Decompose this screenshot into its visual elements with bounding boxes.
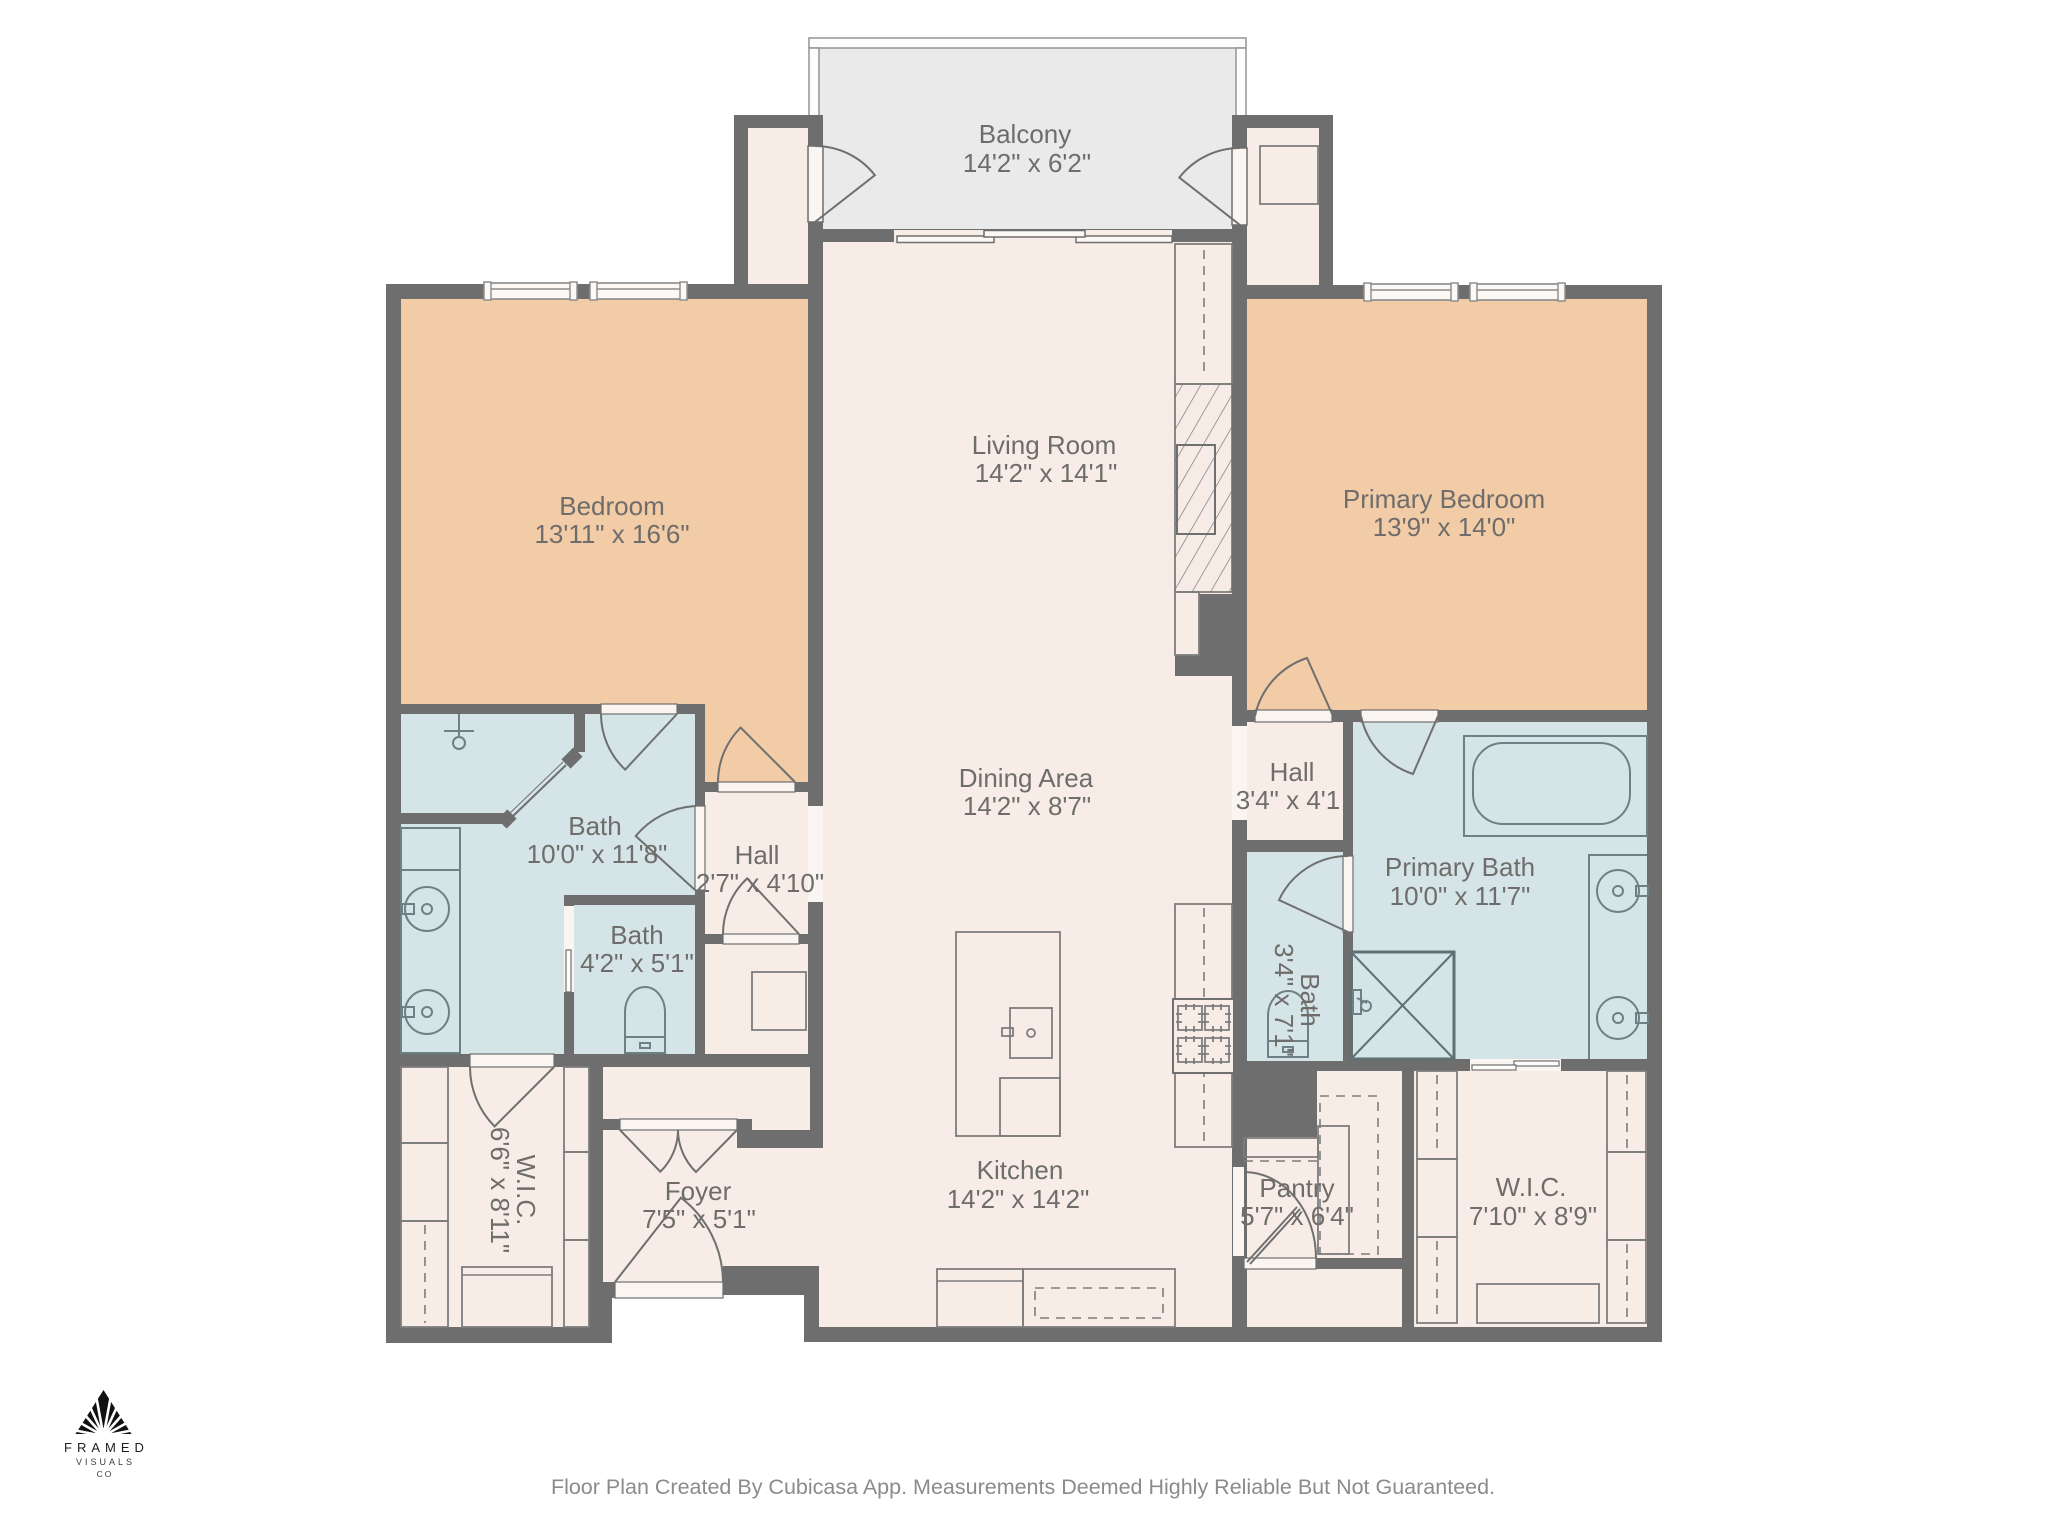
svg-text:CO: CO [97,1469,114,1479]
svg-text:7'5" x 5'1": 7'5" x 5'1" [642,1204,756,1234]
svg-text:7'10" x 8'9": 7'10" x 8'9" [1469,1201,1597,1231]
svg-text:Primary Bedroom: Primary Bedroom [1343,484,1545,514]
svg-text:10'0" x 11'8": 10'0" x 11'8" [527,839,668,869]
svg-text:Foyer: Foyer [665,1176,732,1206]
svg-text:14'2" x 14'1": 14'2" x 14'1" [975,458,1118,488]
svg-text:6'6" x 8'11": 6'6" x 8'11" [485,1127,515,1253]
svg-text:VISUALS: VISUALS [76,1457,135,1467]
svg-text:Dining Area: Dining Area [959,763,1094,793]
svg-text:14'2" x 14'2": 14'2" x 14'2" [947,1184,1090,1214]
svg-text:Balcony: Balcony [979,119,1072,149]
svg-text:3'4" x 7'1": 3'4" x 7'1" [1269,943,1299,1057]
svg-text:14'2" x 6'2": 14'2" x 6'2" [963,148,1091,178]
svg-text:Kitchen: Kitchen [977,1155,1064,1185]
svg-text:Bath: Bath [610,920,664,950]
svg-text:13'9" x 14'0": 13'9" x 14'0" [1373,512,1516,542]
svg-text:3'4" x 4'1: 3'4" x 4'1 [1236,785,1340,815]
svg-text:14'2" x 8'7": 14'2" x 8'7" [963,791,1091,821]
svg-text:5'7" x 6'4": 5'7" x 6'4" [1240,1201,1354,1231]
svg-text:Pantry: Pantry [1259,1173,1334,1203]
svg-text:Floor Plan Created By Cubicasa: Floor Plan Created By Cubicasa App. Meas… [551,1475,1495,1499]
svg-text:Bath: Bath [568,811,622,841]
svg-text:4'2" x 5'1": 4'2" x 5'1" [580,948,694,978]
svg-text:W.I.C.: W.I.C. [1496,1172,1567,1202]
svg-text:Primary Bath: Primary Bath [1385,852,1535,882]
svg-text:10'0" x 11'7": 10'0" x 11'7" [1390,881,1531,911]
svg-text:13'11" x 16'6": 13'11" x 16'6" [534,519,689,549]
svg-text:Living Room: Living Room [972,430,1117,460]
svg-text:Hall: Hall [735,840,780,870]
svg-text:Hall: Hall [1270,757,1315,787]
svg-text:FRAMED: FRAMED [64,1440,149,1455]
svg-text:Bedroom: Bedroom [559,491,665,521]
svg-text:2'7" x 4'10": 2'7" x 4'10" [696,868,824,898]
